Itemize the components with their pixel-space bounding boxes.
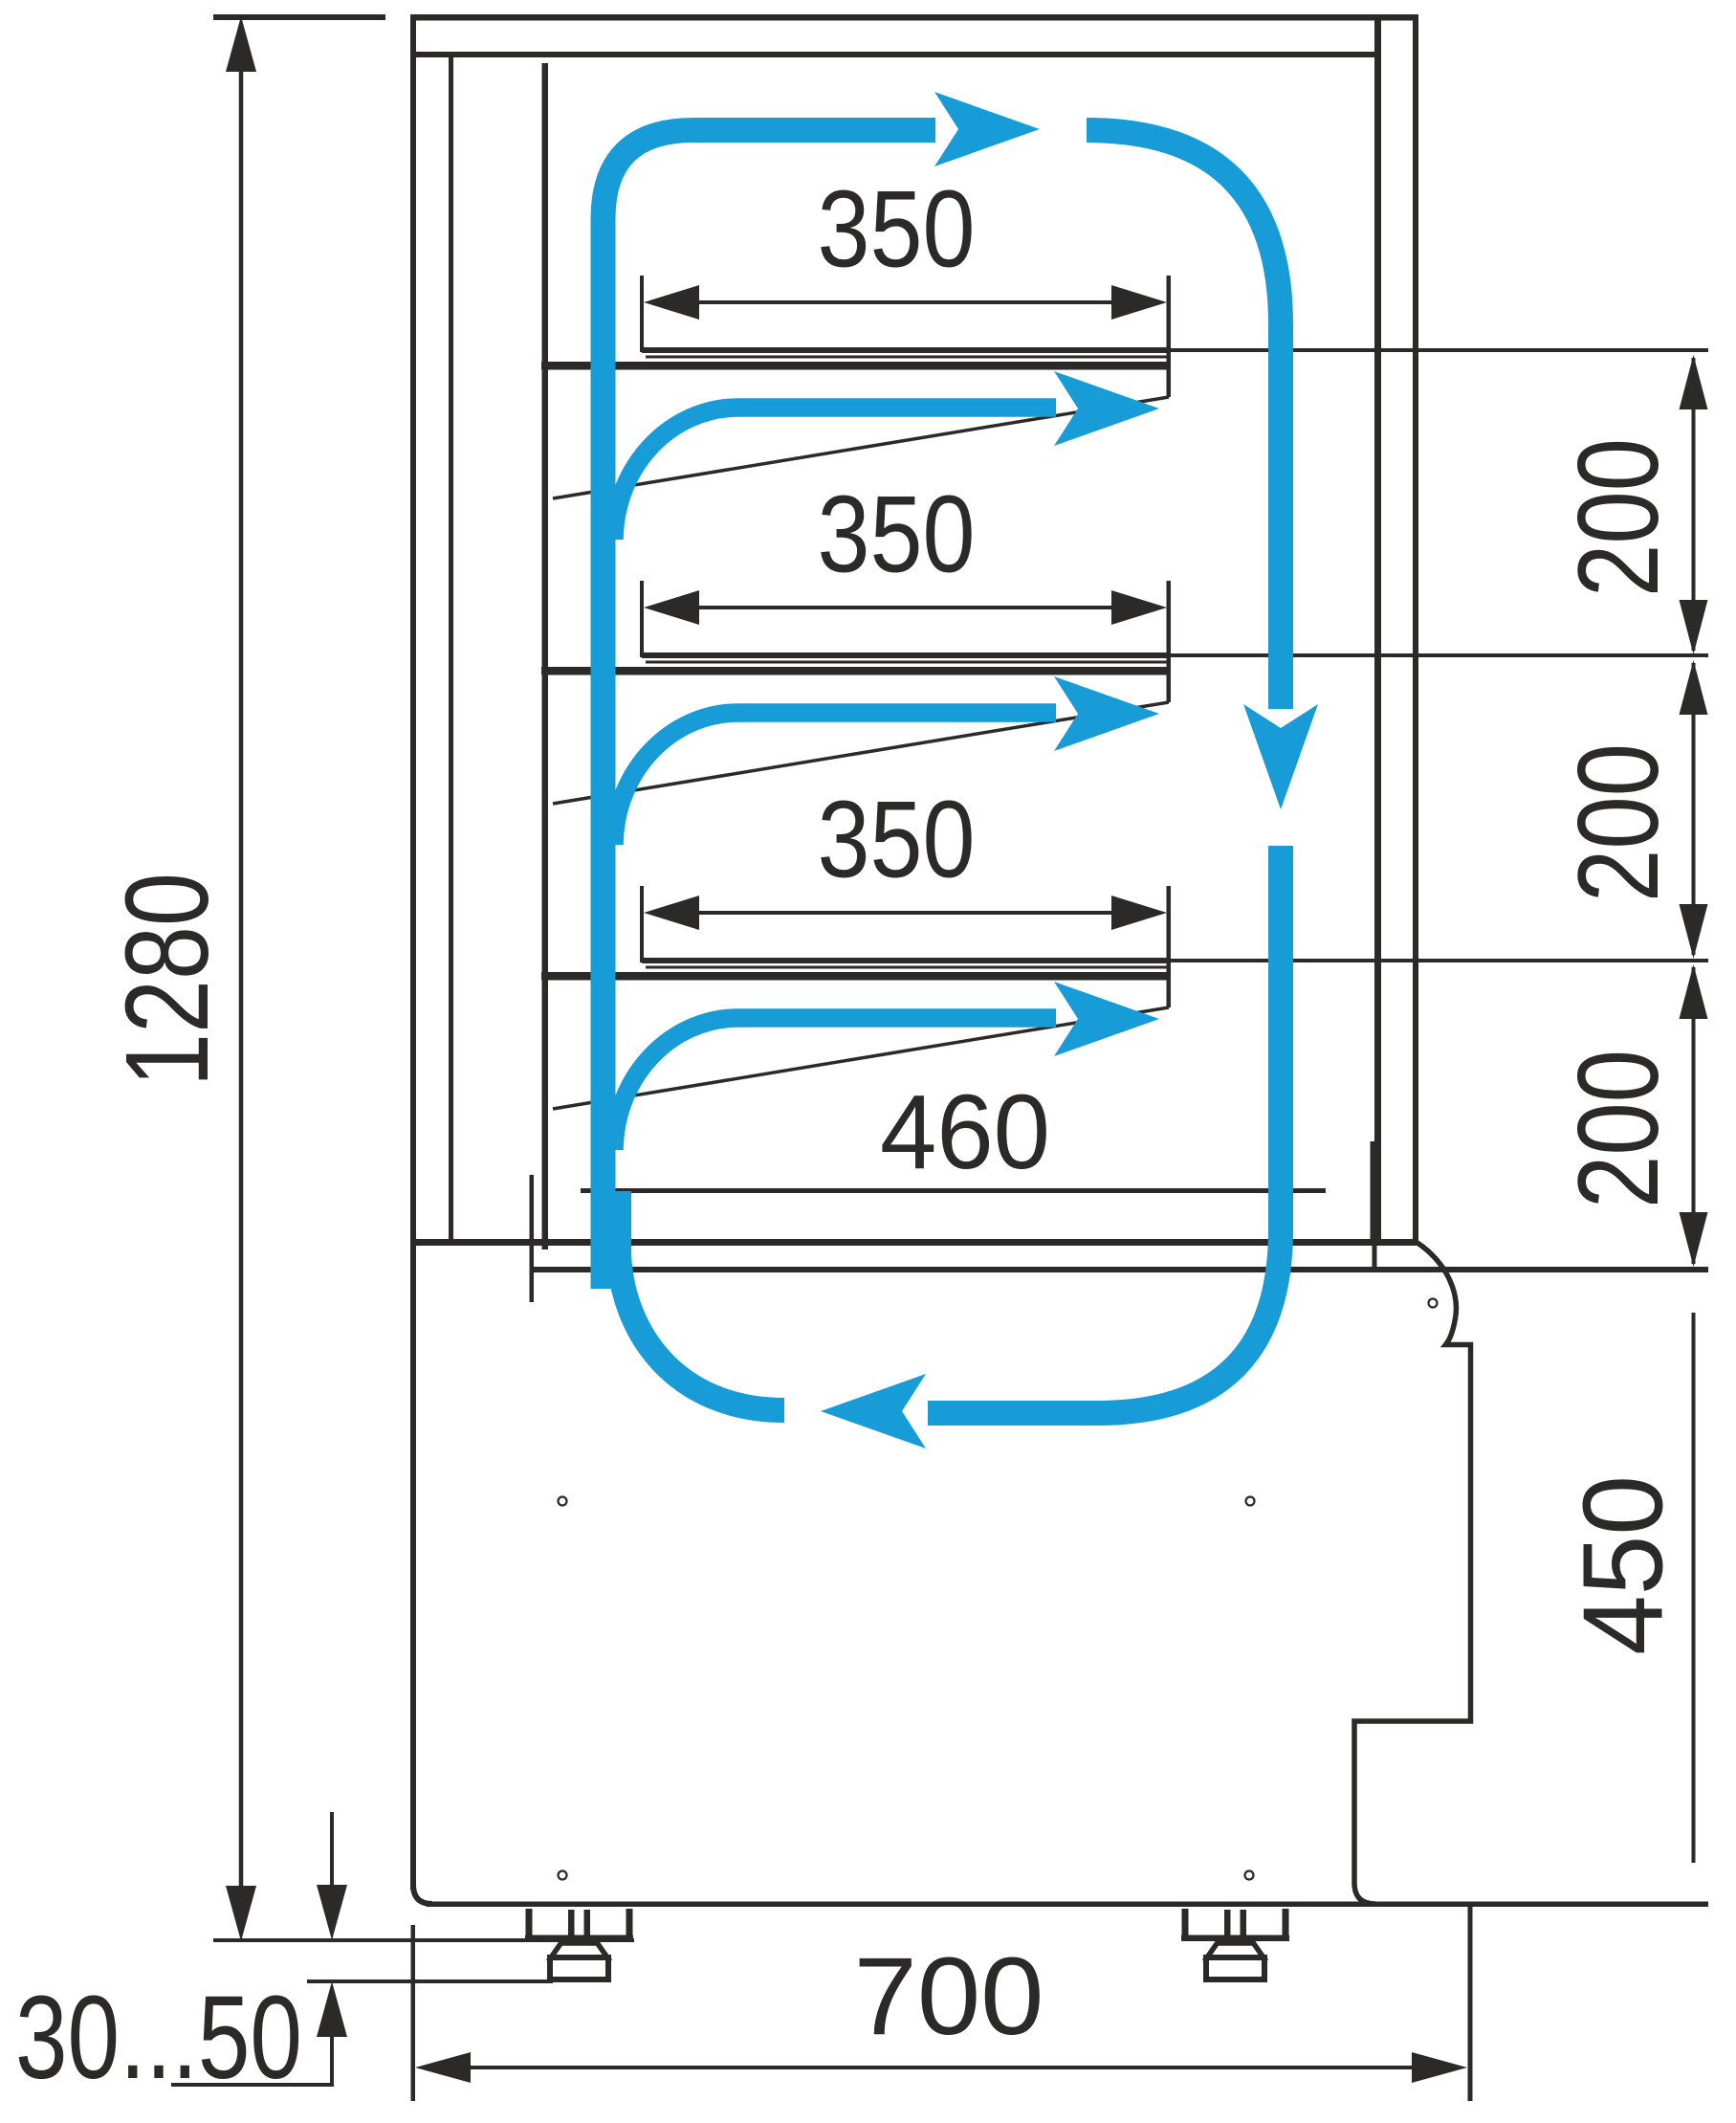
svg-text:350: 350 xyxy=(818,780,976,901)
svg-text:460: 460 xyxy=(880,1073,1050,1191)
svg-text:1280: 1280 xyxy=(102,873,233,1087)
svg-text:350: 350 xyxy=(818,169,976,291)
svg-text:700: 700 xyxy=(854,1935,1044,2058)
svg-text:350: 350 xyxy=(818,475,976,596)
svg-text:200: 200 xyxy=(1554,1050,1682,1208)
svg-text:200: 200 xyxy=(1554,438,1682,597)
svg-text:30...50: 30...50 xyxy=(15,1973,302,2104)
svg-text:200: 200 xyxy=(1554,743,1682,902)
svg-text:450: 450 xyxy=(1560,1475,1687,1655)
